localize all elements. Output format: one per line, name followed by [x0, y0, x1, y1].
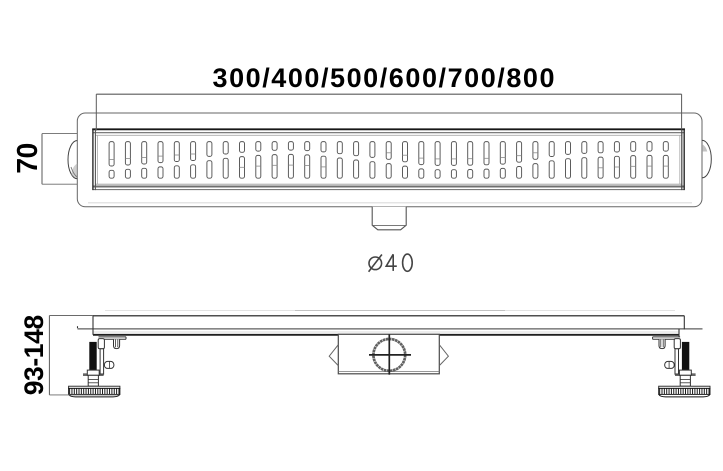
- svg-text:93-148: 93-148: [19, 315, 49, 396]
- svg-text:300/400/500/600/700/800: 300/400/500/600/700/800: [213, 63, 555, 93]
- svg-text:70: 70: [12, 143, 44, 174]
